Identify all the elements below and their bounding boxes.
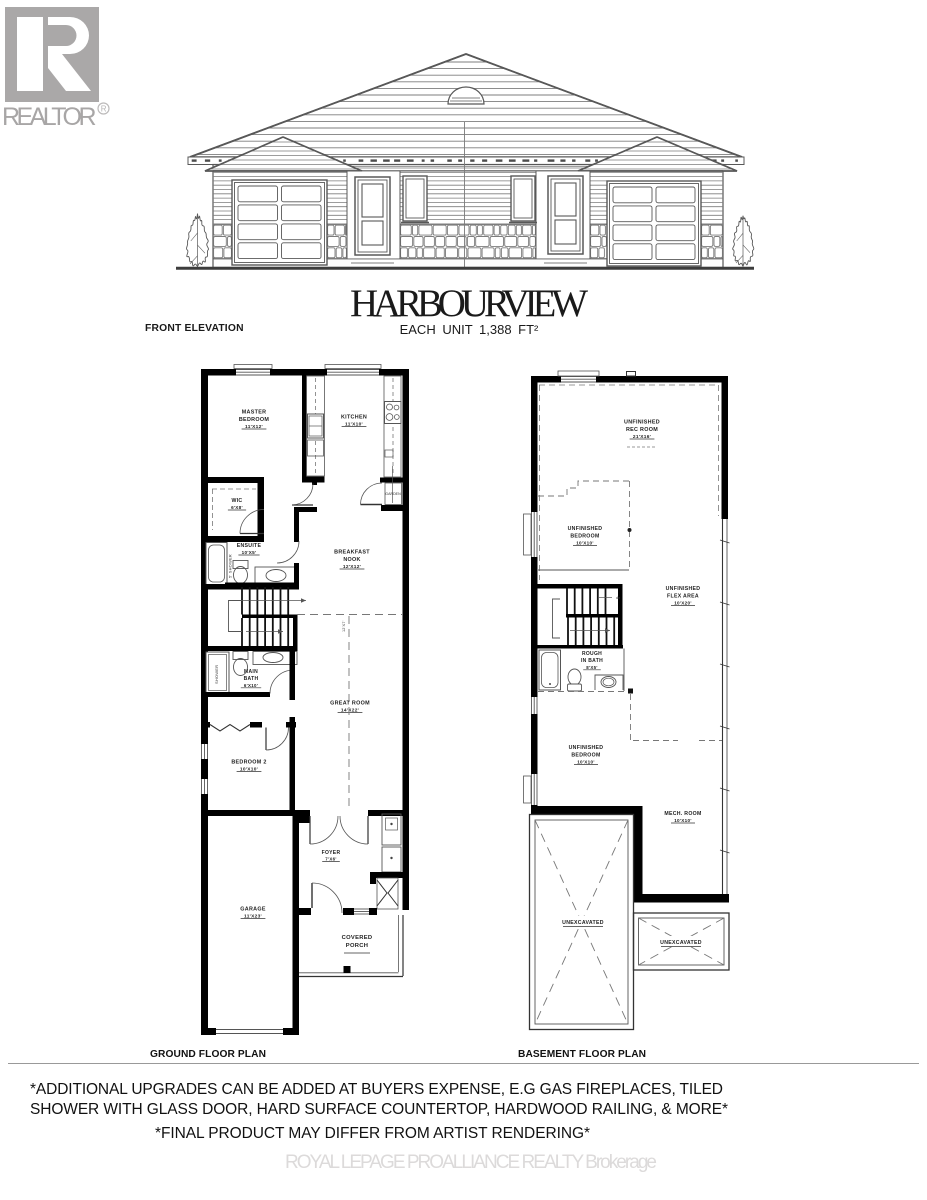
svg-text:BATH: BATH	[244, 676, 259, 682]
svg-text:HARBOURVIEW: HARBOURVIEW	[350, 282, 588, 325]
svg-text:UNEXCAVATED: UNEXCAVATED	[562, 920, 604, 926]
svg-text:R: R	[101, 105, 107, 114]
svg-text:FLEX AREA: FLEX AREA	[667, 594, 699, 600]
svg-text:KITCHEN: KITCHEN	[341, 414, 367, 420]
svg-text:UNFINISHED: UNFINISHED	[569, 745, 604, 751]
svg-text:PORCH: PORCH	[346, 943, 368, 949]
svg-text:dn: dn	[616, 596, 620, 600]
svg-text:UNFINISHED: UNFINISHED	[624, 419, 660, 425]
svg-text:MASTER: MASTER	[242, 409, 267, 415]
svg-text:REC ROOM: REC ROOM	[626, 427, 658, 433]
svg-text:IN BATH: IN BATH	[581, 658, 603, 664]
svg-text:MAIN: MAIN	[244, 669, 258, 675]
svg-text:*FINAL PRODUCT MAY DIFFER FROM: *FINAL PRODUCT MAY DIFFER FROM ARTIST RE…	[155, 1125, 590, 1142]
svg-text:ENSUITE: ENSUITE	[237, 543, 262, 549]
svg-text:NOOK: NOOK	[343, 557, 360, 563]
svg-text:SHOWER WITH GLASS DOOR, HARD S: SHOWER WITH GLASS DOOR, HARD SURFACE COU…	[30, 1101, 728, 1118]
svg-text:UNFINISHED: UNFINISHED	[666, 586, 701, 592]
svg-text:10'X10': 10'X10'	[674, 818, 692, 823]
svg-text:BEDROOM: BEDROOM	[570, 534, 599, 540]
svg-text:REALTOR: REALTOR	[2, 103, 97, 131]
svg-text:ROYAL LEPAGE PROALLIANCE REALT: ROYAL LEPAGE PROALLIANCE REALTY Brokerag…	[285, 1152, 657, 1173]
svg-text:10'X5': 10'X5'	[242, 550, 257, 555]
svg-text:6'X10': 6'X10'	[244, 683, 258, 688]
svg-text:8'X5': 8'X5'	[586, 665, 597, 670]
svg-text:BASEMENT FLOOR PLAN: BASEMENT FLOOR PLAN	[518, 1049, 646, 1060]
svg-text:GARDEN: GARDEN	[385, 492, 401, 496]
svg-text:UNEXCAVATED: UNEXCAVATED	[660, 940, 702, 946]
svg-text:10'X10': 10'X10'	[577, 759, 595, 764]
svg-text:7'X6': 7'X6'	[325, 857, 336, 862]
svg-text:6'X8': 6'X8'	[231, 505, 243, 510]
svg-text:SHOWER: SHOWER	[214, 665, 219, 684]
svg-text:COVERED: COVERED	[342, 935, 373, 941]
svg-text:ROUGH: ROUGH	[582, 651, 602, 657]
svg-text:10'X20': 10'X20'	[674, 600, 692, 605]
svg-text:MECH. ROOM: MECH. ROOM	[664, 811, 701, 817]
svg-text:BEDROOM: BEDROOM	[571, 753, 600, 759]
svg-text:FRONT ELEVATION: FRONT ELEVATION	[145, 323, 244, 334]
svg-text:10'X10': 10'X10'	[576, 540, 594, 545]
svg-text:BEDROOM: BEDROOM	[239, 417, 269, 423]
svg-text:GREAT ROOM: GREAT ROOM	[330, 700, 370, 706]
svg-text:5' SHOWER: 5' SHOWER	[228, 554, 233, 578]
svg-text:*ADDITIONAL UPGRADES CAN BE AD: *ADDITIONAL UPGRADES CAN BE ADDED AT BUY…	[30, 1081, 723, 1098]
svg-text:BEDROOM 2: BEDROOM 2	[231, 759, 266, 765]
svg-text:GROUND FLOOR PLAN: GROUND FLOOR PLAN	[150, 1049, 266, 1060]
svg-text:GARAGE: GARAGE	[240, 906, 266, 912]
svg-text:BREAKFAST: BREAKFAST	[334, 549, 370, 555]
svg-text:FOYER: FOYER	[322, 850, 341, 856]
svg-text:12'X7': 12'X7'	[342, 620, 346, 632]
svg-text:EACH UNIT 1,388 FT²: EACH UNIT 1,388 FT²	[400, 322, 539, 337]
svg-text:UNFINISHED: UNFINISHED	[568, 526, 603, 532]
svg-text:WIC: WIC	[232, 498, 243, 504]
